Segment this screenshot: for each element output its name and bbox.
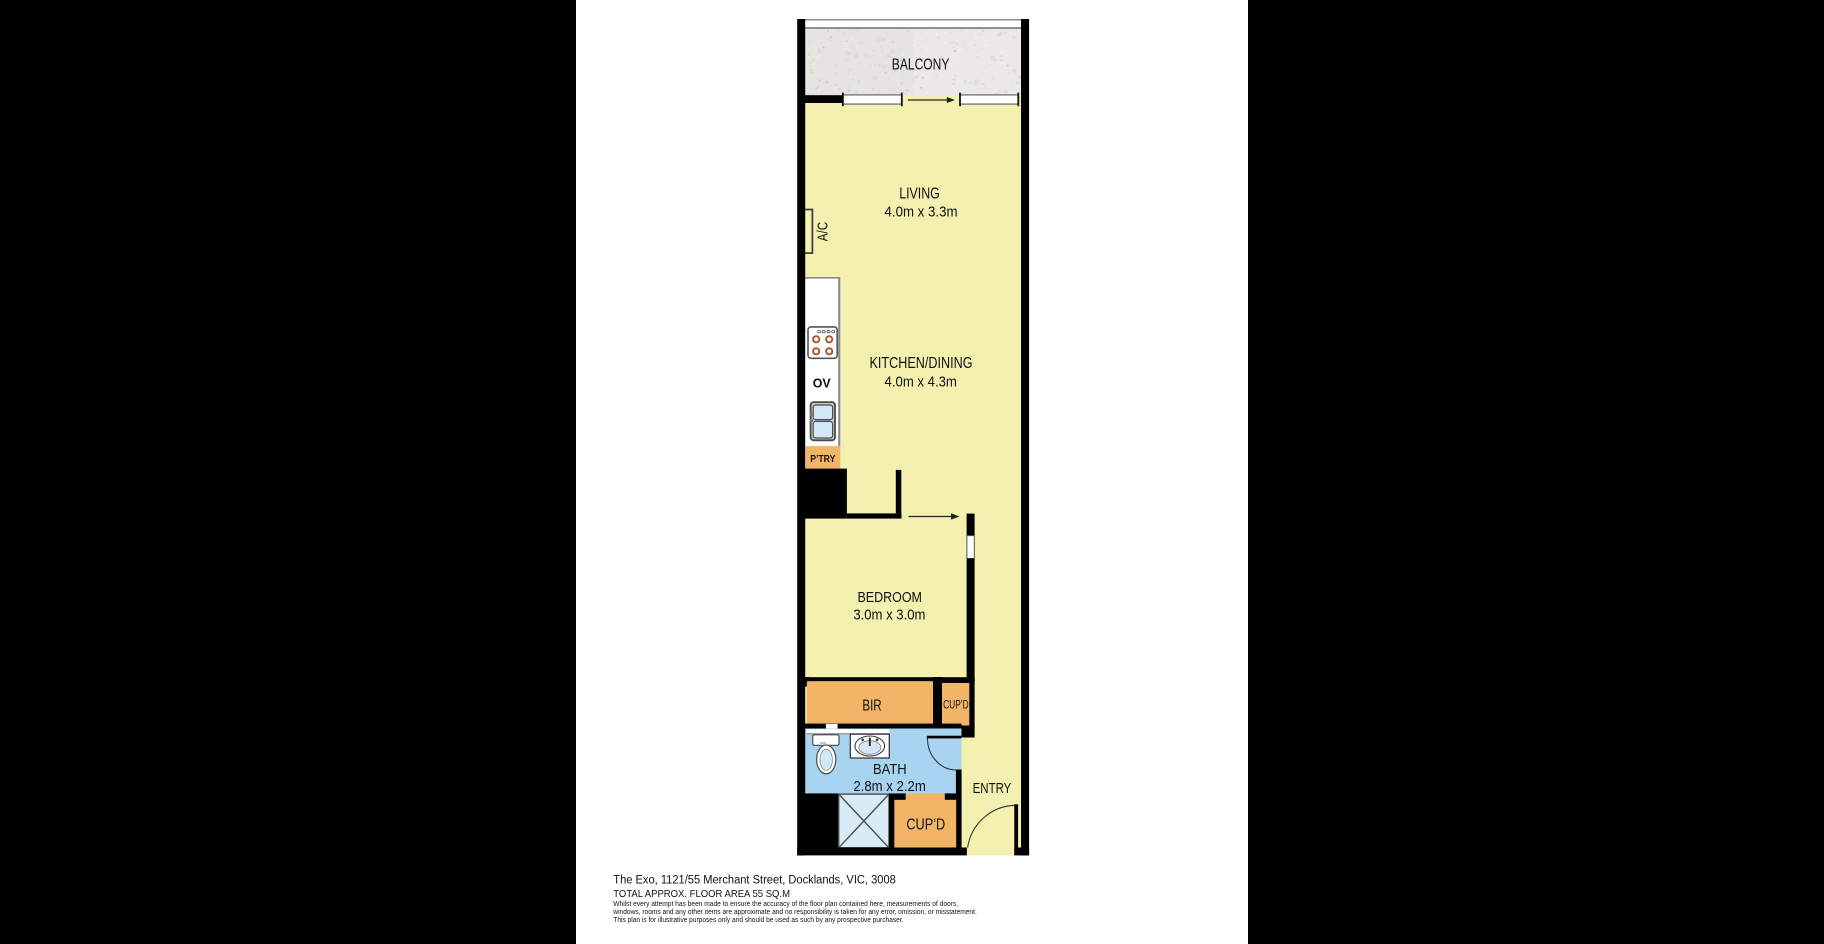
svg-text:LIVING: LIVING	[899, 185, 940, 202]
svg-text:OV: OV	[813, 376, 832, 390]
svg-text:BATH: BATH	[873, 761, 907, 778]
svg-text:3.0m x 3.0m: 3.0m x 3.0m	[853, 607, 925, 624]
svg-text:CUP’D: CUP’D	[906, 817, 945, 834]
svg-text:The Exo, 1121/55 Merchant Stre: The Exo, 1121/55 Merchant Street, Dockla…	[613, 875, 896, 887]
svg-text:CUP’D: CUP’D	[943, 700, 969, 712]
svg-text:TOTAL APPROX. FLOOR AREA 55 SQ: TOTAL APPROX. FLOOR AREA 55 SQ.M	[613, 888, 790, 900]
svg-text:4.0m x 4.3m: 4.0m x 4.3m	[885, 373, 957, 390]
svg-text:P’TRY: P’TRY	[810, 453, 835, 465]
svg-text:KITCHEN/DINING: KITCHEN/DINING	[870, 355, 973, 372]
svg-text:This plan is for illustrative: This plan is for illustrative purposes o…	[613, 917, 903, 924]
svg-text:BALCONY: BALCONY	[892, 57, 950, 74]
svg-text:A/C: A/C	[814, 222, 831, 242]
svg-text:BIR: BIR	[862, 698, 881, 715]
svg-text:2.8m x 2.2m: 2.8m x 2.2m	[853, 778, 926, 795]
svg-text:windows, rooms and any other i: windows, rooms and any other items are a…	[612, 909, 976, 916]
svg-text:4.0m x 3.3m: 4.0m x 3.3m	[885, 203, 958, 220]
svg-text:Whilst every attempt has been: Whilst every attempt has been made to en…	[613, 901, 958, 908]
svg-text:BEDROOM: BEDROOM	[857, 589, 922, 606]
svg-text:ENTRY: ENTRY	[973, 780, 1012, 797]
